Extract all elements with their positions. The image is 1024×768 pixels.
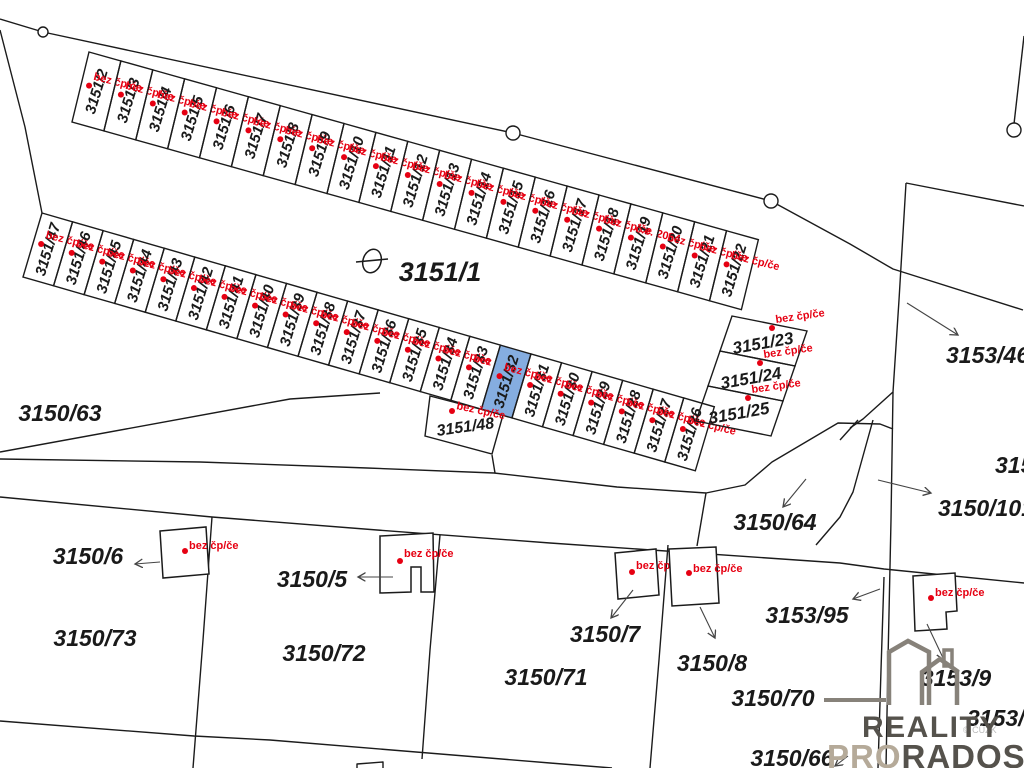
building-point: [344, 329, 350, 335]
boundary-line: [0, 721, 612, 768]
leader-arrow: [700, 607, 715, 638]
building-point: [245, 127, 251, 133]
boundary-line: [0, 459, 706, 493]
leader-arrow: [135, 562, 160, 564]
parcel-label-3153-46: 3153/46: [946, 342, 1024, 368]
parcel-label-3150-8: 3150/8: [677, 650, 748, 676]
parcel-label-315: 315: [995, 452, 1024, 478]
building-point: [660, 244, 666, 250]
building-point: [928, 595, 934, 601]
parcel-label-3150-73: 3150/73: [53, 625, 136, 651]
parcel-label-3151-1: 3151/1: [399, 257, 482, 287]
no-house-number-label: bez čp/če: [935, 587, 985, 599]
parcel-label-3150-64: 3150/64: [733, 509, 816, 535]
building-point: [449, 408, 455, 414]
building-point: [724, 261, 730, 267]
building-point: [757, 360, 763, 366]
logo-text-proradost: PRORADOST: [827, 738, 1024, 768]
parcel-number-label: 3151/25: [707, 398, 771, 427]
building-point: [277, 136, 283, 142]
building-point: [469, 190, 475, 196]
boundary-marker: [506, 126, 520, 140]
boundary-line: [1014, 36, 1024, 124]
building-point: [435, 356, 441, 362]
building-point: [283, 311, 289, 317]
building-point: [769, 325, 775, 331]
leader-arrow: [878, 480, 931, 493]
building-point: [182, 548, 188, 554]
building-point: [619, 408, 625, 414]
boundary-marker: [38, 27, 48, 37]
building-point: [745, 395, 751, 401]
building-outline: [913, 573, 957, 631]
leader-arrow: [907, 303, 958, 335]
building-point: [527, 382, 533, 388]
building-point: [680, 426, 686, 432]
building-point: [649, 417, 655, 423]
parcel-label-3150-5: 3150/5: [277, 566, 349, 592]
building-point: [374, 338, 380, 344]
boundary-line: [697, 493, 706, 546]
parcel-label-3153-95: 3153/95: [765, 602, 849, 628]
building-point: [500, 199, 506, 205]
building-point: [252, 303, 258, 309]
building-point: [692, 252, 698, 258]
building-point: [628, 235, 634, 241]
no-house-number-label: bez čp/če: [189, 540, 239, 552]
building-point: [341, 154, 347, 160]
parcel-label-3150-7: 3150/7: [570, 621, 642, 647]
boundary-line: [771, 201, 1023, 310]
building-point: [532, 208, 538, 214]
no-house-number-label: bez čp/če: [693, 563, 743, 575]
parcel-label-3150-63: 3150/63: [18, 400, 101, 426]
building-point: [130, 267, 136, 273]
building-point: [405, 347, 411, 353]
building-outline: [669, 547, 719, 606]
leader-arrow: [783, 479, 806, 507]
building-point: [497, 373, 503, 379]
boundary-line: [357, 762, 383, 768]
building-point: [150, 101, 156, 107]
parcel-label-3150-66: 3150/66: [750, 745, 833, 768]
building-point: [160, 276, 166, 282]
cadastral-map-image: 3151/2bez čp/če3151/3bez čp/če3151/4bez …: [0, 0, 1024, 768]
building-outline: [615, 549, 659, 599]
building-outline: [380, 533, 434, 593]
boundary-line: [492, 455, 495, 473]
building-point: [309, 145, 315, 151]
building-point: [558, 391, 564, 397]
building-point: [686, 570, 692, 576]
no-house-number-label: bez čp/če: [404, 548, 454, 560]
building-point: [38, 241, 44, 247]
building-point: [564, 217, 570, 223]
building-point: [405, 172, 411, 178]
building-point: [629, 569, 635, 575]
no-house-number-label: bez čp/če: [775, 307, 826, 326]
building-point: [191, 285, 197, 291]
parcel-label-3150-72: 3150/72: [282, 640, 365, 666]
boundary-line: [816, 420, 873, 545]
parcel-label-3150-71: 3150/71: [504, 664, 587, 690]
boundary-line: [0, 30, 42, 213]
parcel-label-3151-48: 3151/48: [436, 415, 496, 440]
parcel-label-3150-70: 3150/70: [731, 685, 814, 711]
building-point: [466, 364, 472, 370]
building-point: [437, 181, 443, 187]
building-point: [313, 320, 319, 326]
building-point: [221, 294, 227, 300]
boundary-line: [906, 183, 1024, 206]
building-point: [214, 118, 220, 124]
cadastral-map-canvas: 3151/2bez čp/če3151/3bez čp/če3151/4bez …: [0, 0, 1024, 768]
building-point: [182, 109, 188, 115]
building-point: [69, 250, 75, 256]
boundary-line: [0, 497, 1024, 583]
building-point: [86, 83, 92, 89]
building-point: [397, 558, 403, 564]
gate-symbol-bar: [356, 259, 388, 262]
boundary-marker: [764, 194, 778, 208]
building-point: [373, 163, 379, 169]
parcel-label-3150-101: 3150/101: [938, 495, 1024, 521]
parcel-label-3150-6: 3150/6: [53, 543, 124, 569]
building-point: [118, 92, 124, 98]
building-point: [99, 259, 105, 265]
boundary-line: [850, 183, 906, 428]
building-point: [596, 226, 602, 232]
leader-arrow: [853, 589, 880, 599]
boundary-marker: [1007, 123, 1021, 137]
building-point: [588, 400, 594, 406]
